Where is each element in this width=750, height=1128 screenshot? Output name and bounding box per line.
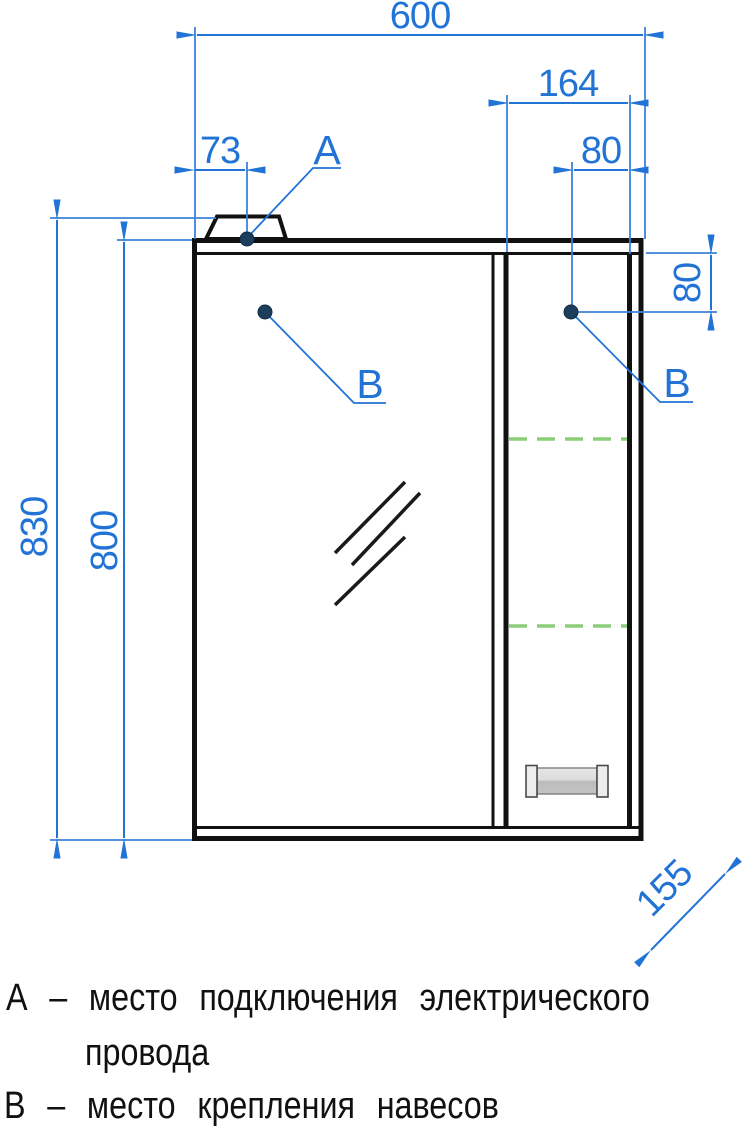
dimension-value: 80	[581, 130, 621, 172]
dimension-right-section-width: 164	[509, 63, 628, 105]
callout-label: В	[356, 361, 383, 407]
handle-bar	[537, 768, 597, 794]
dimension-value: 155	[628, 852, 700, 924]
technical-drawing-page: 600 164 73 80 80 830 800 155 А В	[0, 0, 750, 1128]
dimension-depth: 155	[628, 852, 725, 950]
dimension-value: 73	[200, 130, 240, 172]
dimension-value: 600	[390, 0, 450, 37]
dimension-value: 80	[667, 263, 709, 303]
legend-line-a2: провода	[85, 1032, 210, 1074]
callout-label: А	[313, 127, 341, 173]
dimension-point-b-offset-right: 80	[574, 130, 628, 172]
dimension-value: 164	[538, 63, 599, 105]
connection-point-a-dot	[240, 232, 254, 246]
dimension-value: 830	[14, 497, 56, 557]
door-handle	[526, 766, 608, 798]
handle-cap-right	[597, 766, 608, 798]
hinge-point-b-left-dot	[258, 305, 272, 319]
cabinet-drawing: 600 164 73 80 80 830 800 155 А В	[0, 0, 750, 1128]
dimension-total-height: 830	[14, 220, 57, 838]
callout-label: В	[663, 360, 690, 406]
dimension-body-height: 800	[84, 242, 126, 838]
hinge-point-b-right-dot	[564, 305, 578, 319]
cabinet-outline	[195, 241, 642, 839]
dimension-point-a-offset: 73	[195, 130, 245, 172]
handle-cap-left	[526, 766, 537, 798]
legend-line-a1: А – место подключения электрического	[6, 977, 650, 1019]
dimension-value: 800	[84, 511, 126, 571]
callout-a: А	[240, 127, 341, 246]
dimension-point-b-offset-down: 80	[667, 255, 711, 310]
legend: А – место подключения электрического про…	[4, 977, 650, 1127]
legend-line-b: В – место крепления навесов	[4, 1085, 499, 1127]
dimension-total-width: 600	[197, 0, 643, 37]
